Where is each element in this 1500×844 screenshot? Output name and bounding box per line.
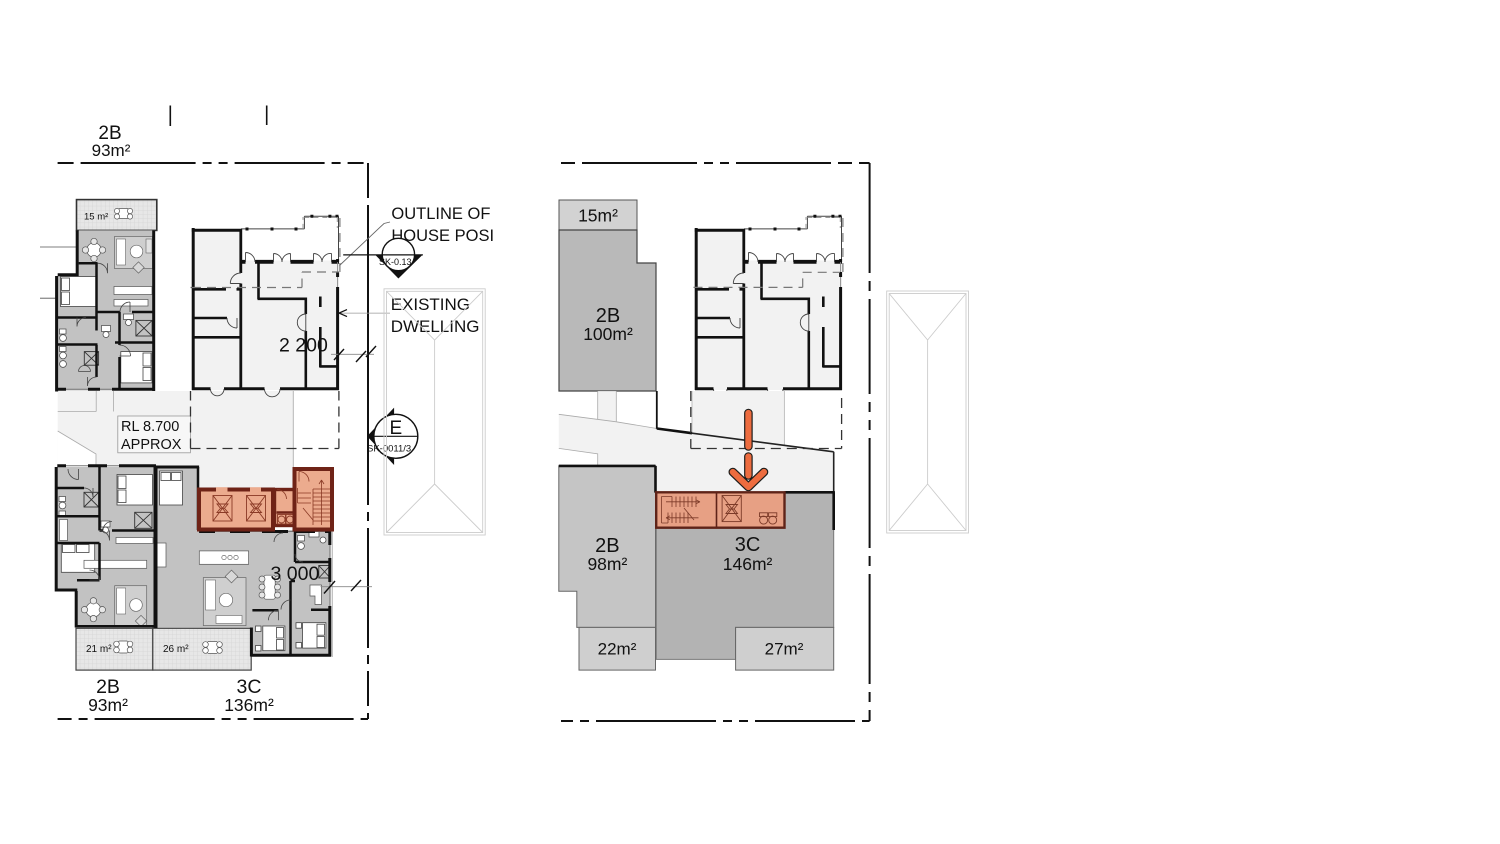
svg-text:EXISTING: EXISTING: [391, 295, 470, 314]
svg-text:DWELLING: DWELLING: [391, 317, 480, 336]
svg-text:27m²: 27m²: [765, 640, 804, 659]
svg-text:98m²: 98m²: [587, 554, 627, 574]
svg-text:93m²: 93m²: [92, 141, 131, 160]
svg-text:2 200: 2 200: [279, 335, 328, 357]
svg-text:3C: 3C: [735, 534, 761, 556]
svg-text:RL 8.700: RL 8.700: [121, 419, 179, 435]
svg-text:15 m²: 15 m²: [84, 212, 108, 223]
svg-text:SK-0.13: SK-0.13: [379, 257, 412, 267]
svg-text:APPROX: APPROX: [121, 437, 182, 453]
svg-text:SK-0011/3: SK-0011/3: [367, 444, 411, 455]
svg-text:3 000: 3 000: [271, 563, 320, 585]
svg-text:21 m²: 21 m²: [86, 644, 112, 655]
svg-text:146m²: 146m²: [723, 554, 773, 574]
svg-text:26 m²: 26 m²: [163, 644, 189, 655]
svg-text:136m²: 136m²: [224, 695, 274, 715]
svg-text:93m²: 93m²: [88, 695, 128, 715]
svg-text:15m²: 15m²: [578, 206, 618, 226]
svg-text:OUTLINE OF: OUTLINE OF: [391, 205, 490, 223]
svg-text:22m²: 22m²: [598, 640, 637, 659]
svg-text:100m²: 100m²: [583, 324, 633, 344]
